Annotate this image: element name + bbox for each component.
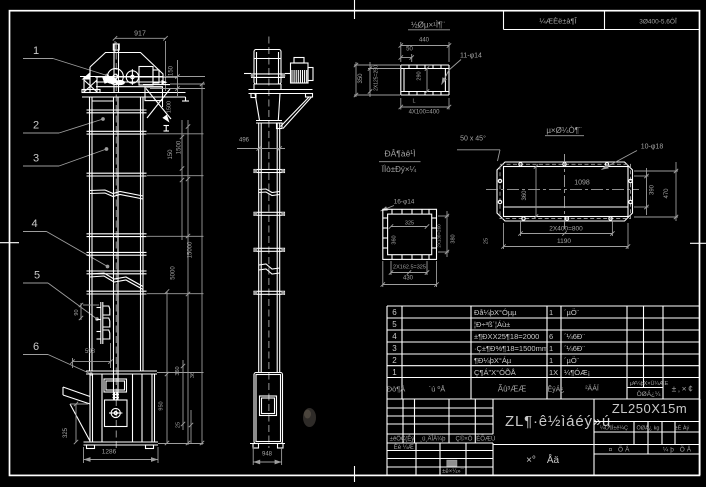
svg-text:´µÖ¨: ´µÖ¨ [564, 356, 580, 365]
svg-text:´¼6Ð¨: ´¼6Ð¨ [564, 332, 585, 341]
svg-text:Ç¶Á"X°ÓÕÅ: Ç¶Á"X°ÓÕÅ [474, 368, 516, 377]
svg-text:±,×¢: ±,×¢ [672, 384, 695, 394]
svg-text:25: 25 [484, 238, 490, 244]
svg-text:948: 948 [262, 452, 273, 458]
svg-text:ZL250X15m: ZL250X15m [612, 401, 687, 416]
svg-text:1500: 1500 [167, 101, 173, 113]
svg-text:6: 6 [392, 308, 397, 317]
svg-text:150: 150 [168, 149, 174, 160]
svg-text:2X130=260: 2X130=260 [437, 224, 442, 248]
svg-text:390: 390 [650, 184, 656, 195]
svg-text:·Ç±¶Ð%¶18=1500mm: ·Ç±¶Ð%¶18=1500mm [474, 344, 548, 353]
svg-text:325: 325 [405, 221, 414, 227]
svg-text:6: 6 [33, 341, 39, 353]
svg-text:²ÄÁÏ: ²ÄÁÏ [585, 384, 599, 393]
svg-text:¼¶ÓÆ¡: ¼¶ÓÆ¡ [564, 368, 590, 377]
svg-text:430: 430 [403, 276, 414, 282]
svg-text:Ç©×Ö: Ç©×Ö [456, 436, 473, 443]
svg-text:´µÖ¨: ´µÖ¨ [564, 308, 580, 317]
svg-text:5: 5 [34, 270, 40, 282]
svg-text:150: 150 [169, 65, 175, 76]
svg-text:25: 25 [176, 422, 182, 428]
svg-text:Ðå¼þX°Óµµ: Ðå¼þX°Óµµ [474, 308, 517, 317]
svg-text:Ãû³ÆÆ: Ãû³ÆÆ [498, 385, 526, 394]
svg-text:917: 917 [134, 31, 146, 38]
svg-text:90: 90 [74, 309, 80, 315]
svg-text:×°: ×° [526, 455, 536, 466]
svg-text:598: 598 [85, 349, 96, 355]
svg-text:1098: 1098 [574, 180, 590, 187]
svg-text:325: 325 [63, 427, 69, 438]
svg-text:¤ ÕÅ: ¤ ÕÅ [609, 445, 632, 454]
svg-text:ÖØÁ¿ kg: ÖØÁ¿ kg [637, 425, 660, 432]
svg-text:360: 360 [522, 190, 528, 201]
svg-text:ÐÂ¶àê¹Ì: ÐÂ¶àê¹Ì [384, 149, 415, 159]
svg-text:1190: 1190 [557, 238, 571, 245]
svg-text:15000: 15000 [188, 241, 194, 258]
svg-text:Ðò¶Å: Ðò¶Å [387, 385, 406, 394]
svg-text:´ú ºÅ: ´ú ºÅ [429, 385, 446, 394]
svg-text:5: 5 [392, 320, 397, 329]
svg-text:50: 50 [406, 47, 413, 53]
svg-text:´¼6Ð¨: ´¼6Ð¨ [564, 344, 585, 353]
svg-text:¦Ð÷³ß´¦Áù±: ¦Ð÷³ß´¦Áù± [474, 320, 510, 329]
svg-text:4X100=400: 4X100=400 [409, 110, 441, 116]
svg-text:1X: 1X [549, 368, 558, 377]
svg-text:36: 36 [190, 372, 196, 378]
svg-text:1500: 1500 [177, 140, 183, 154]
svg-text:380: 380 [451, 234, 457, 243]
svg-text:2: 2 [33, 120, 39, 132]
svg-text:496: 496 [239, 138, 250, 144]
svg-text:ÖØÁ¿¼: ÖØÁ¿¼ [637, 389, 661, 398]
svg-text:4: 4 [31, 218, 37, 230]
svg-text:4: 4 [392, 332, 397, 341]
svg-text:350: 350 [358, 73, 364, 84]
svg-text:µ×Ø¼Ò¶¨: µ×Ø¼Ò¶¨ [546, 126, 582, 135]
svg-text:L: L [412, 99, 415, 105]
svg-text:1: 1 [392, 368, 397, 377]
svg-text:290: 290 [417, 71, 423, 80]
svg-text:Åä: Åä [547, 453, 560, 466]
svg-text:2X162.5=325: 2X162.5=325 [393, 265, 426, 271]
svg-text:±¶ÐXX25¶18=2000: ±¶ÐXX25¶18=2000 [474, 332, 539, 341]
svg-text:±È Àý: ±È Àý [675, 425, 690, 432]
svg-text:5000: 5000 [171, 266, 177, 280]
svg-text:1: 1 [549, 344, 553, 353]
svg-text:470: 470 [664, 188, 670, 199]
svg-text:16-φ14: 16-φ14 [394, 199, 415, 206]
svg-text:ÏÌò±Ðý×¼: ÏÌò±Ðý×¼ [382, 165, 417, 174]
svg-text:Éè ¼Æ: Éè ¼Æ [394, 444, 414, 451]
svg-text:1286: 1286 [102, 449, 117, 456]
svg-text:1: 1 [549, 308, 553, 317]
svg-text:µ¥¼þX×Ü¼ÆE: µ¥¼þX×Ü¼ÆE [630, 380, 669, 387]
svg-text:360: 360 [175, 366, 181, 375]
svg-text:ÈÕÆÚ: ÈÕÆÚ [476, 436, 495, 443]
svg-text:1: 1 [33, 45, 39, 57]
svg-text:3: 3 [392, 344, 397, 353]
svg-text:440: 440 [419, 38, 430, 44]
svg-text:¸ü¸ÄÎÄ¼þ: ¸ü¸ÄÎÄ¼þ [420, 436, 446, 443]
svg-text:±êÖÇ(Êý: ±êÖÇ(Êý [390, 435, 415, 443]
svg-text:2: 2 [392, 356, 397, 365]
svg-text:360: 360 [392, 235, 398, 244]
svg-text:950: 950 [159, 401, 165, 410]
svg-text:1: 1 [549, 356, 553, 365]
svg-text:±ê×¼»¯: ±ê×¼»¯ [442, 468, 464, 475]
svg-text:3Ø400-5.6ÔÎ: 3Ø400-5.6ÔÎ [639, 17, 677, 26]
svg-text:50 x 45°: 50 x 45° [460, 135, 486, 143]
svg-text:ÊýÁ¿: ÊýÁ¿ [547, 385, 564, 394]
svg-text:¼þ ÕÅ: ¼þ ÕÅ [663, 445, 693, 454]
svg-text:½Øµ×¹Ì¶¨: ½Øµ×¹Ì¶¨ [411, 20, 445, 29]
svg-text:11-φ14: 11-φ14 [460, 53, 482, 60]
svg-text:¼Ó¶Î±ê¼Ç: ¼Ó¶Î±ê¼Ç [600, 425, 628, 432]
svg-text:¶Ð¼þX°Áµ: ¶Ð¼þX°Áµ [474, 356, 512, 365]
svg-text:10-φ18: 10-φ18 [641, 144, 664, 151]
svg-text:3: 3 [33, 153, 39, 165]
svg-text:¼ÆÈë±à¶Î: ¼ÆÈë±à¶Î [539, 17, 577, 26]
svg-text:6: 6 [549, 332, 553, 341]
